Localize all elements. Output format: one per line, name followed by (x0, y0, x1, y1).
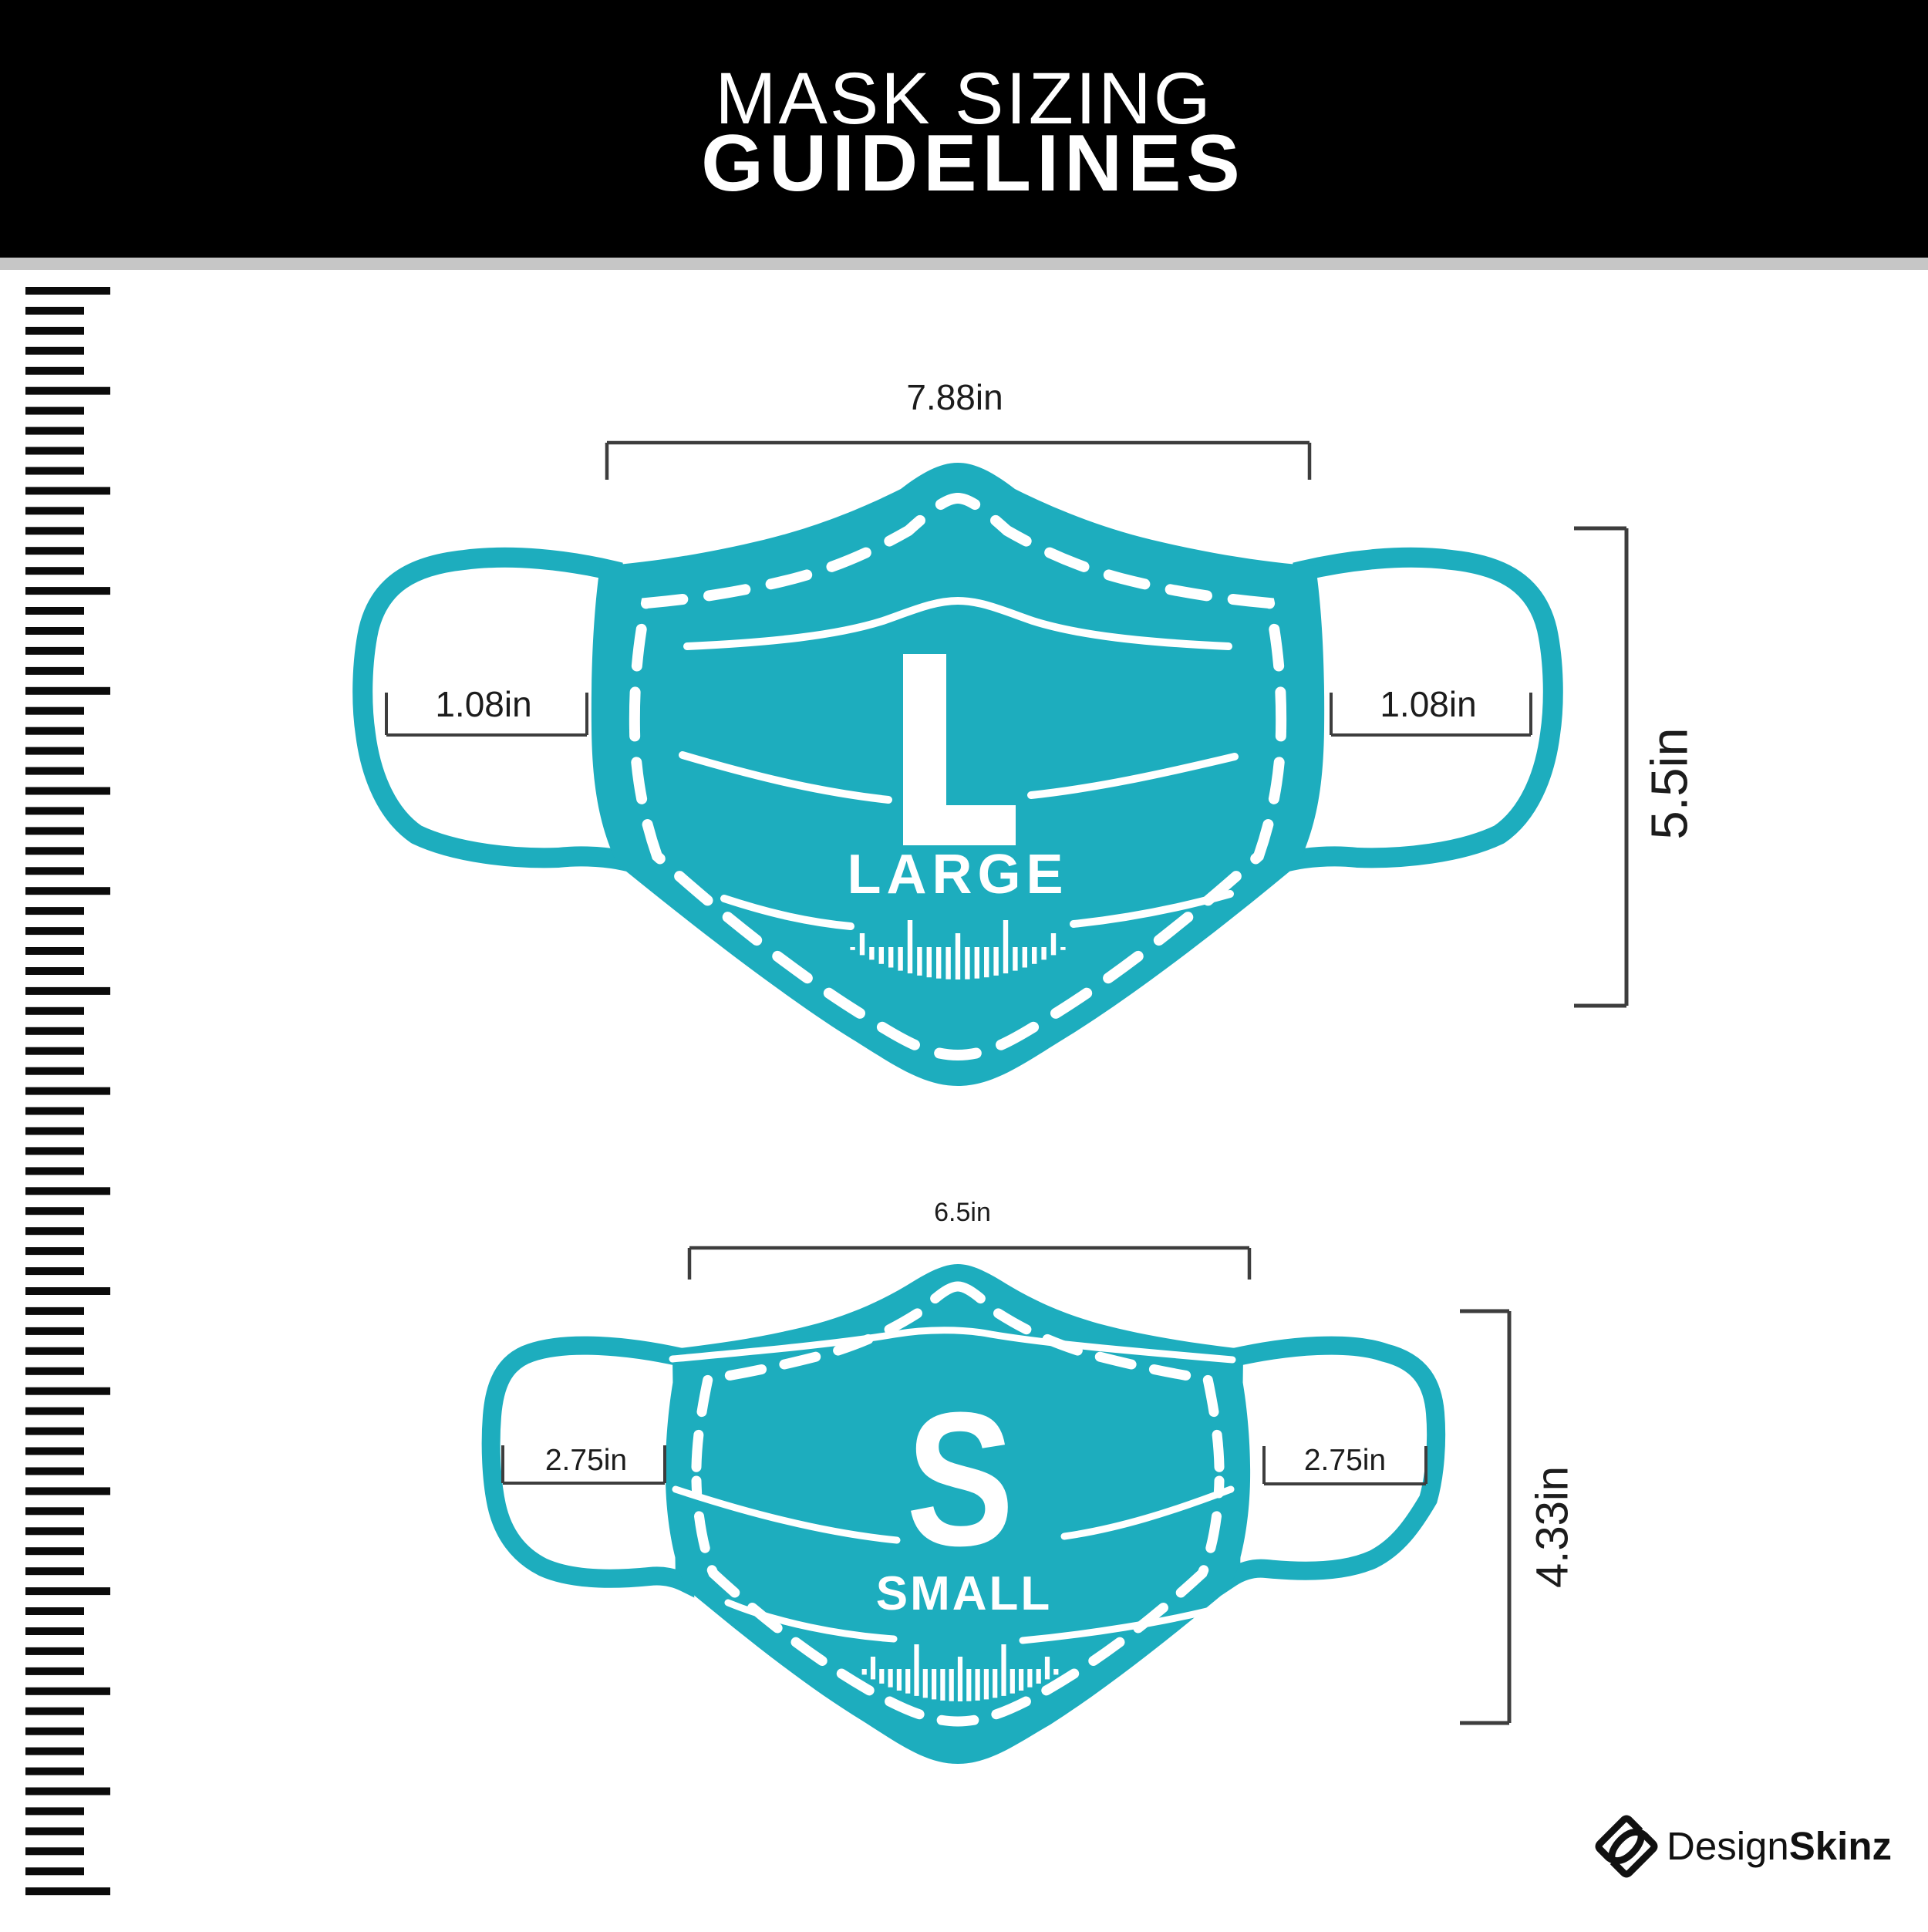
svg-text:DesignSkinz: DesignSkinz (1667, 1824, 1892, 1868)
svg-text:4.33in: 4.33in (1527, 1466, 1577, 1588)
svg-text:5.5in: 5.5in (1641, 727, 1699, 839)
svg-text:2.75in: 2.75in (545, 1444, 627, 1477)
svg-text:LARGE: LARGE (848, 844, 1069, 905)
svg-text:1.08in: 1.08in (435, 684, 531, 724)
svg-text:SMALL: SMALL (876, 1567, 1053, 1620)
svg-text:7.88in: 7.88in (906, 377, 1003, 417)
svg-text:1.08in: 1.08in (1380, 684, 1476, 724)
svg-text:GUIDELINES: GUIDELINES (701, 119, 1245, 208)
svg-text:6.5in: 6.5in (934, 1198, 991, 1227)
svg-text:2.75in: 2.75in (1304, 1444, 1386, 1477)
svg-text:S: S (906, 1373, 1014, 1586)
